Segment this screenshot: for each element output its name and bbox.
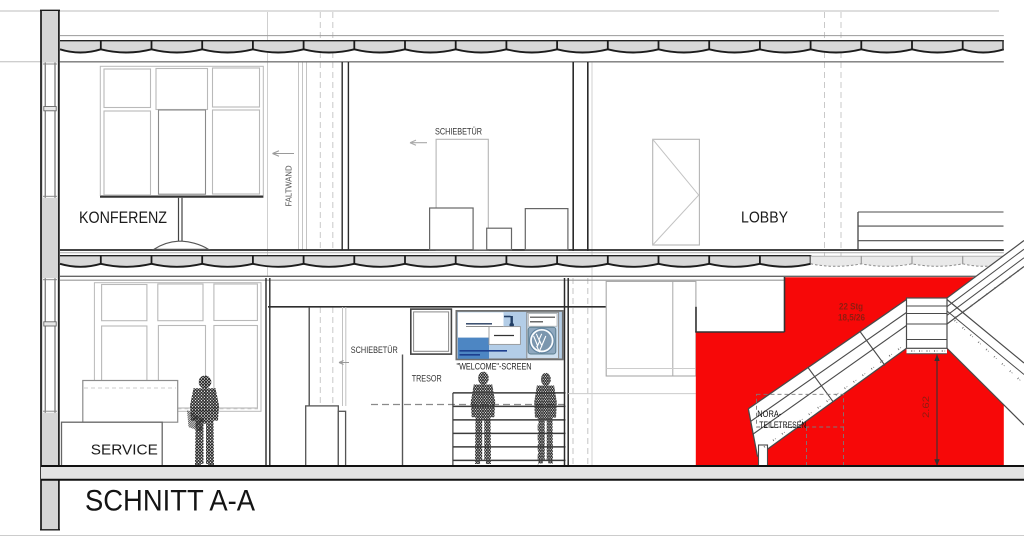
svg-text:LOBBY: LOBBY <box>741 210 788 227</box>
svg-text:18,5/26: 18,5/26 <box>838 313 865 323</box>
svg-text:FALTWAND: FALTWAND <box>285 165 294 206</box>
svg-text:22 Stg: 22 Stg <box>839 302 863 312</box>
svg-text:KONFERENZ: KONFERENZ <box>79 209 167 227</box>
svg-text:2.62: 2.62 <box>921 396 931 418</box>
svg-text:TRESOR: TRESOR <box>412 373 442 384</box>
svg-text:NORA-: NORA- <box>757 409 781 419</box>
svg-text:SCHNITT A-A: SCHNITT A-A <box>85 485 255 518</box>
svg-text:TEILETRESEN: TEILETRESEN <box>759 420 806 430</box>
svg-text:SERVICE: SERVICE <box>91 443 158 459</box>
svg-text:SCHIEBETÜR: SCHIEBETÜR <box>351 345 398 356</box>
svg-text:SCHIEBETÜR: SCHIEBETÜR <box>435 127 482 138</box>
svg-text:"WELCOME"-SCREEN: "WELCOME"-SCREEN <box>457 361 532 372</box>
